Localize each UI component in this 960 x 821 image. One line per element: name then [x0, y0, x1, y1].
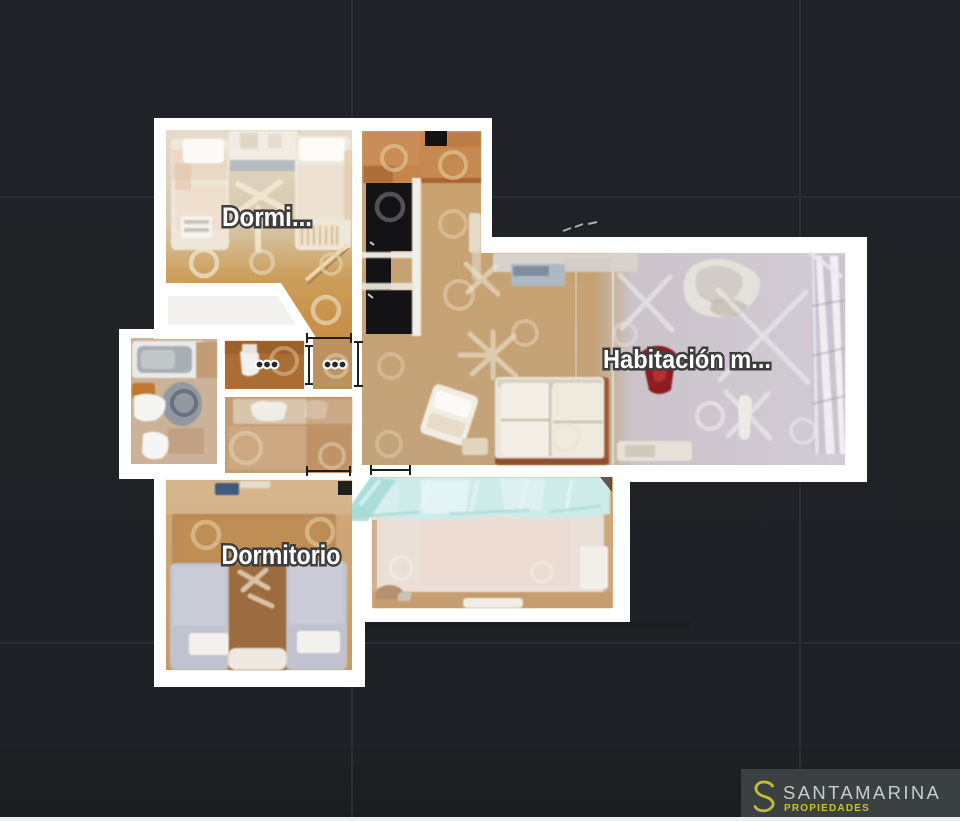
svg-text:SANTAMARINA: SANTAMARINA [783, 782, 941, 803]
svg-text:PROPIEDADES: PROPIEDADES [784, 803, 870, 814]
svg-text:Habitación m...: Habitación m... [603, 344, 771, 374]
svg-text:Dormi...: Dormi... [222, 202, 312, 232]
svg-text:Dormitorio: Dormitorio [222, 540, 341, 570]
